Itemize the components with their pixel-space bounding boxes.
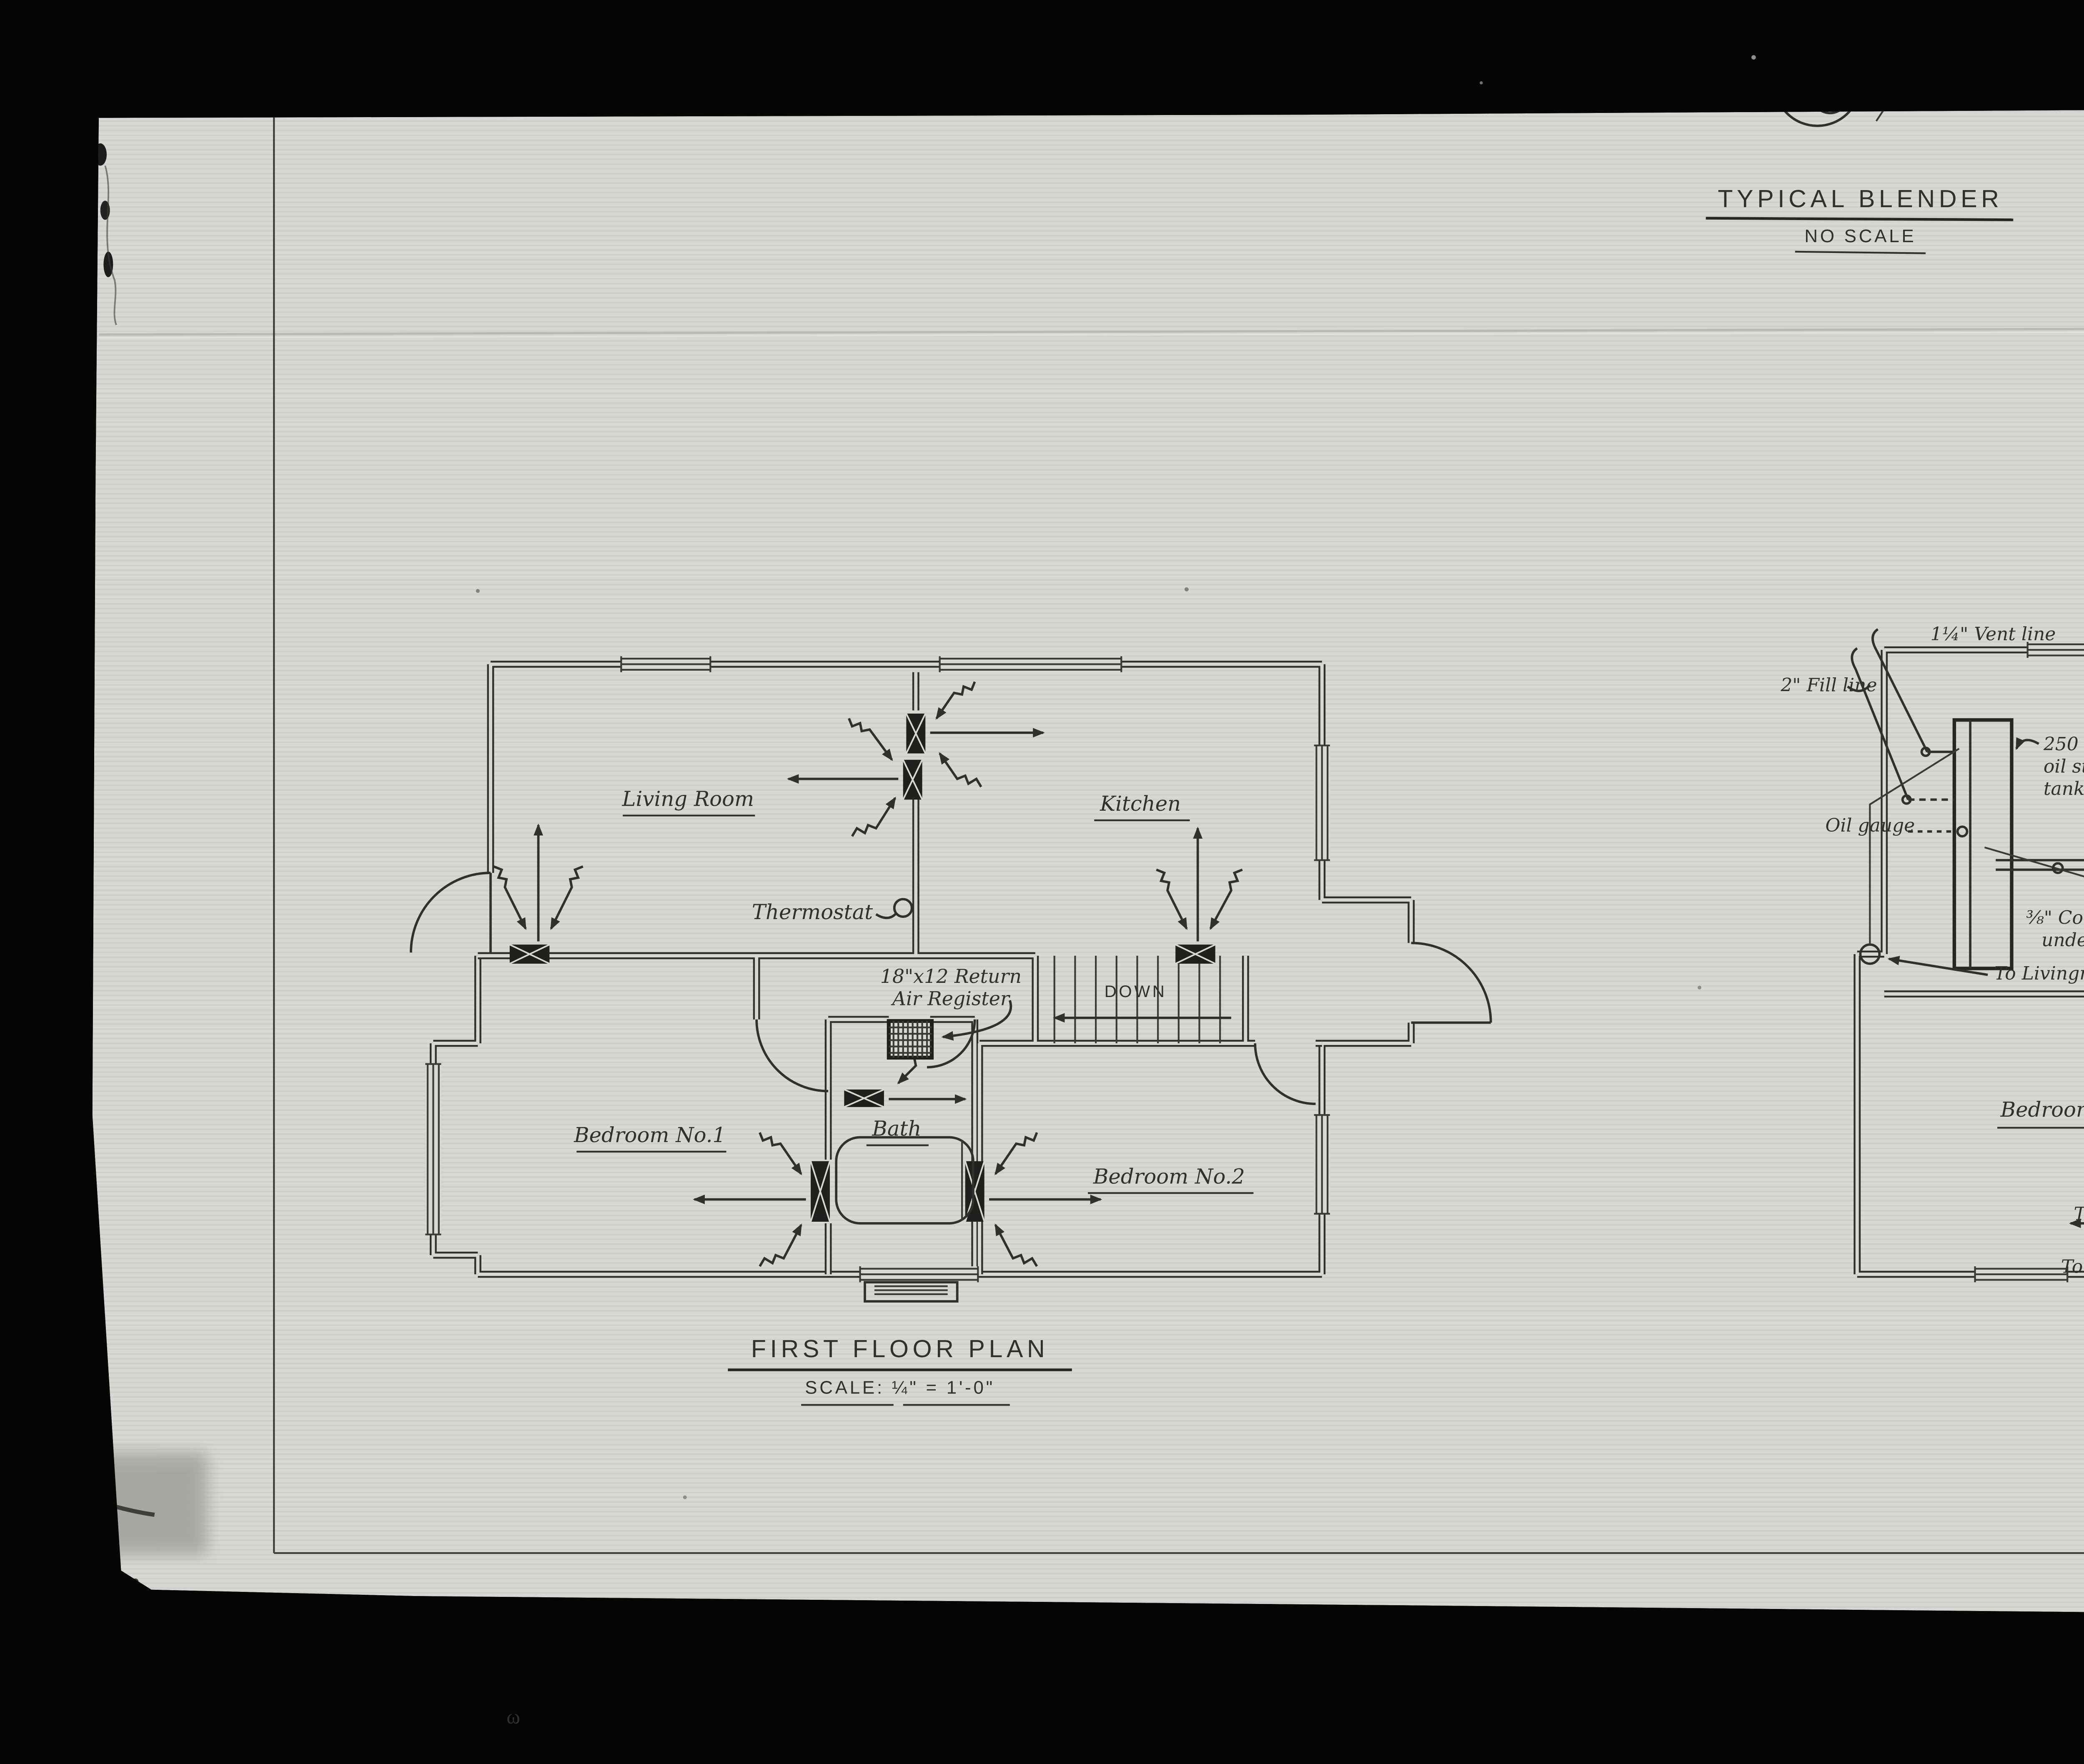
window-west-bay: [425, 1064, 441, 1235]
scratch-mark-omega: ω: [506, 1705, 520, 1728]
b-window-south-1: [1975, 1266, 2068, 1282]
ff-scale: SCALE: ¼" = 1'-0": [805, 1378, 995, 1398]
paper-sheet: TYPICAL BLENDER NO SCALE: [70, 40, 2084, 1619]
vent-line-label: 1¼" Vent line: [1931, 624, 2056, 645]
copper-line-label-1: ⅜" Copper tube oil line: [2026, 907, 2084, 928]
bath-label: Bath: [872, 1117, 921, 1141]
tank-label-3: tank: [2044, 778, 2084, 799]
window-east-kitchen: [1314, 745, 1330, 860]
tank-label-1: 250 gallon: [2043, 734, 2084, 755]
living-room-label: Living Room: [622, 787, 754, 811]
kitchen-label: Kitchen: [1100, 792, 1181, 816]
thermostat-label: Thermostat: [752, 900, 873, 924]
scratch-speck: [1751, 55, 1756, 60]
ff-title: FIRST FLOOR PLAN: [751, 1335, 1049, 1363]
blueprint-scan: ω TYPICAL BLEND: [0, 0, 2084, 1763]
copper-line-label-2: under concrete slab: [2041, 930, 2084, 951]
bedroom3-label: Bedroom No.3: [2000, 1097, 2084, 1122]
detail-title: TYPICAL BLENDER: [1718, 185, 2003, 213]
to-bedroom3-label: To Bedroom No.3: [2074, 1203, 2084, 1225]
window-south-bath: [860, 1266, 978, 1282]
scratch-speck: [1480, 81, 1483, 85]
to-livingroom-lower-label: To Livingroom: [1994, 963, 2084, 984]
fill-line-label: 2" Fill line: [1780, 674, 1877, 696]
scanned-blueprint-page: ω TYPICAL BLEND: [0, 0, 2084, 1763]
oil-gauge-label: Oil gauge: [1825, 815, 1915, 836]
detail-subtitle: NO SCALE: [1804, 226, 1916, 246]
tank-label-2: oil storage: [2044, 756, 2084, 777]
detail-title-underline: [1706, 218, 2014, 220]
return-register-label-1: 18"x12 Return: [880, 965, 1022, 987]
window-north-2: [940, 656, 1122, 672]
bedroom2-label: Bedroom No.2: [1093, 1164, 1245, 1188]
window-north-1: [621, 656, 710, 672]
to-bedroom1-label: To Bedroom No.1: [2061, 1256, 2084, 1277]
window-east-bedroom2: [1314, 1115, 1330, 1214]
down-label: DOWN: [1105, 982, 1167, 1001]
bedroom1-label: Bedroom No.1: [574, 1123, 726, 1147]
return-register-label-2: Air Register: [891, 987, 1011, 1010]
